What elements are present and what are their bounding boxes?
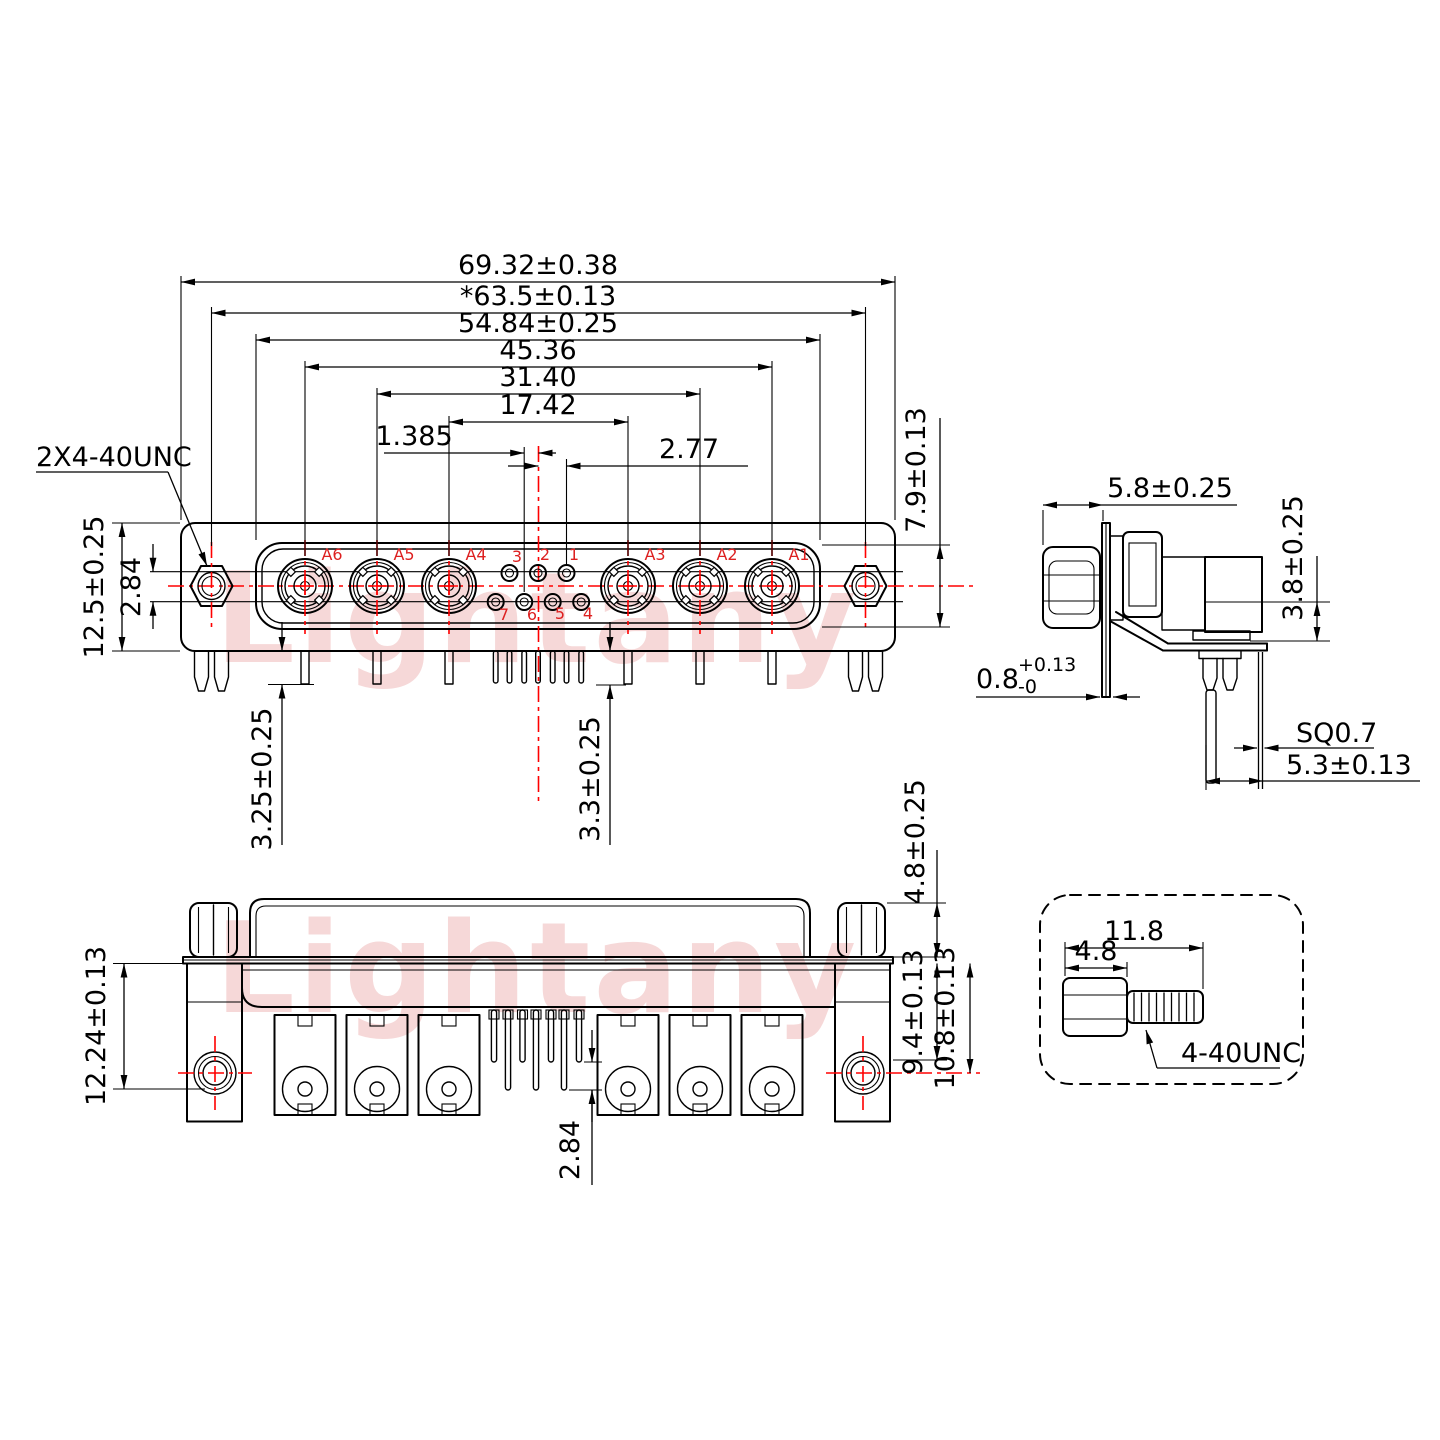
svg-text:3.25±0.25: 3.25±0.25 bbox=[247, 708, 278, 851]
svg-text:7.9±0.13: 7.9±0.13 bbox=[901, 407, 932, 533]
label-a3: A3 bbox=[644, 545, 665, 564]
label-pin6: 6 bbox=[527, 605, 537, 624]
svg-text:5.8±0.25: 5.8±0.25 bbox=[1107, 473, 1233, 504]
svg-text:9.4±0.13: 9.4±0.13 bbox=[898, 949, 929, 1075]
label-a1: A1 bbox=[788, 545, 809, 564]
label-pin7: 7 bbox=[499, 605, 509, 624]
svg-text:12.5±0.25: 12.5±0.25 bbox=[79, 516, 110, 659]
svg-text:12.24±0.13: 12.24±0.13 bbox=[81, 946, 112, 1106]
side-profile bbox=[1043, 523, 1267, 789]
svg-text:31.40: 31.40 bbox=[499, 362, 576, 393]
label-a6: A6 bbox=[321, 545, 342, 564]
drawing-page: Lightany Lightany A6 A5 bbox=[0, 0, 1440, 1440]
svg-text:1.385: 1.385 bbox=[375, 421, 452, 452]
svg-text:4.8: 4.8 bbox=[1075, 936, 1118, 967]
flange-tol-upper: +0.13 bbox=[1018, 654, 1076, 676]
dim-span-a4-a3: 17.42 bbox=[449, 390, 628, 422]
flange-thickness-value: 0.8 bbox=[976, 664, 1019, 695]
svg-text:4-40UNC: 4-40UNC bbox=[1181, 1038, 1301, 1069]
svg-text:10.8±0.13: 10.8±0.13 bbox=[930, 947, 961, 1090]
label-pin4: 4 bbox=[583, 604, 593, 623]
dim-hole-center: 10.8±0.13 bbox=[930, 947, 970, 1090]
svg-text:3.3±0.25: 3.3±0.25 bbox=[575, 716, 606, 842]
label-pin3: 3 bbox=[512, 547, 522, 566]
thread-callout-detail: 4-40UNC bbox=[1146, 1030, 1301, 1069]
svg-text:SQ0.7: SQ0.7 bbox=[1296, 718, 1377, 749]
label-pin2: 2 bbox=[540, 545, 550, 564]
label-a4: A4 bbox=[465, 545, 486, 564]
svg-text:3.8±0.25: 3.8±0.25 bbox=[1278, 495, 1309, 621]
svg-text:5.3±0.13: 5.3±0.13 bbox=[1286, 750, 1412, 781]
dim-pin-offset: 1.385 bbox=[375, 421, 556, 453]
dim-flange-thickness: 0.8 +0.13 -0 bbox=[976, 654, 1140, 698]
svg-text:2.77: 2.77 bbox=[659, 434, 719, 465]
flange-tol-lower: -0 bbox=[1018, 676, 1037, 698]
svg-text:17.42: 17.42 bbox=[499, 390, 576, 421]
svg-text:2.84: 2.84 bbox=[555, 1120, 586, 1180]
svg-text:69.32±0.38: 69.32±0.38 bbox=[458, 250, 618, 281]
dim-pin-square: SQ0.7 bbox=[1234, 718, 1377, 749]
technical-drawing-canvas: Lightany Lightany A6 A5 bbox=[0, 0, 1440, 1440]
side-view: 5.8±0.25 bbox=[976, 473, 1420, 790]
label-pin1: 1 bbox=[569, 545, 579, 564]
screw-detail: 11.8 4.8 4-40UNC bbox=[1040, 895, 1303, 1084]
svg-text:2.84: 2.84 bbox=[116, 557, 147, 617]
label-a5: A5 bbox=[393, 545, 414, 564]
dim-screw-head: 4.8±0.25 bbox=[887, 779, 946, 957]
dim-standoff-length: 5.8±0.25 bbox=[1043, 473, 1237, 545]
watermark-bottom: Lightany bbox=[215, 895, 859, 1042]
label-pin5: 5 bbox=[555, 604, 565, 623]
label-a2: A2 bbox=[716, 545, 737, 564]
dim-overall-width: 69.32±0.38 bbox=[181, 250, 895, 282]
dim-pin-setback: 5.3±0.13 bbox=[1206, 745, 1420, 790]
svg-text:4.8±0.25: 4.8±0.25 bbox=[900, 779, 931, 905]
screw-geometry bbox=[1063, 978, 1203, 1036]
svg-text:2X4-40UNC: 2X4-40UNC bbox=[36, 442, 192, 473]
